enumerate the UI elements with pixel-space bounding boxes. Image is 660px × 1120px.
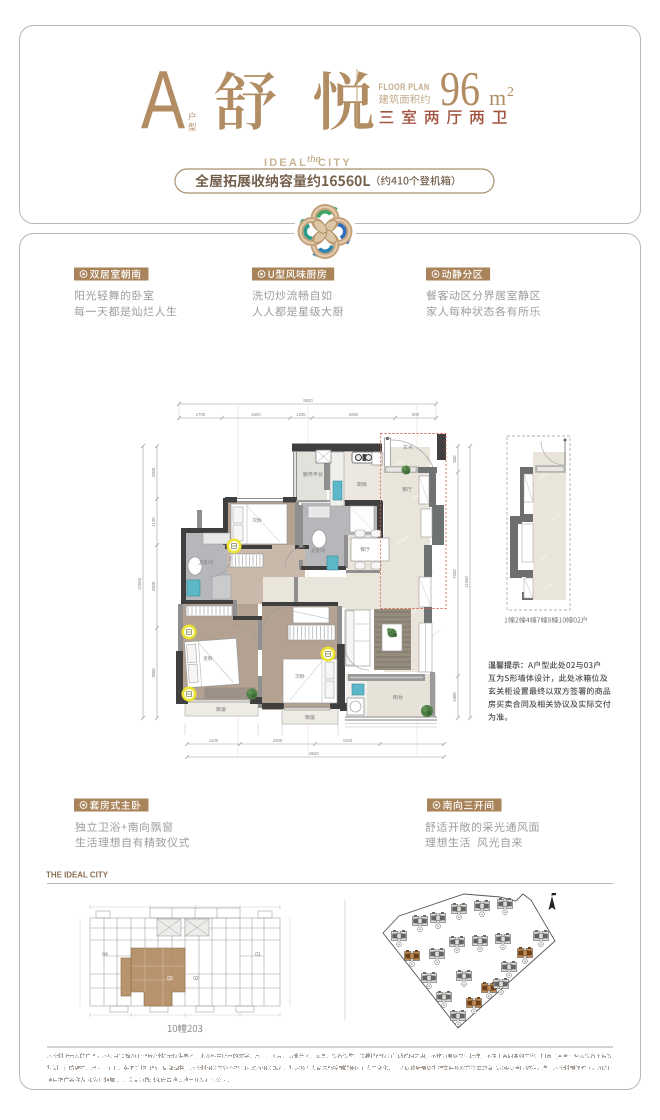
svg-text:IDEAL: IDEAL [264, 157, 308, 169]
svg-text:2: 2 [507, 85, 514, 100]
svg-text:1100: 1100 [209, 738, 219, 743]
svg-text:04: 04 [102, 952, 108, 958]
svg-text:900: 900 [412, 412, 420, 417]
svg-text:3000: 3000 [151, 668, 156, 678]
svg-text:the: the [307, 153, 321, 165]
svg-text:01: 01 [255, 952, 261, 958]
svg-text:THE IDEAL CITY: THE IDEAL CITY [46, 870, 108, 880]
svg-text:1500: 1500 [343, 738, 353, 743]
svg-text:2000: 2000 [151, 467, 156, 477]
svg-text:9530: 9530 [303, 398, 313, 403]
svg-text:1130: 1130 [151, 517, 156, 527]
svg-text:96: 96 [440, 61, 480, 116]
svg-text:FLOOR PLAN: FLOOR PLAN [379, 82, 430, 92]
svg-text:m: m [489, 85, 506, 110]
svg-text:02: 02 [193, 976, 199, 982]
svg-text:A: A [141, 53, 185, 146]
svg-text:2900: 2900 [273, 738, 283, 743]
svg-text:1800: 1800 [452, 692, 457, 702]
svg-text:2850: 2850 [349, 412, 359, 417]
svg-text:11550: 11550 [464, 576, 469, 588]
svg-text:CITY: CITY [318, 157, 352, 169]
svg-text:800: 800 [452, 455, 457, 463]
svg-text:2600: 2600 [251, 412, 261, 417]
svg-text:1700: 1700 [196, 412, 206, 417]
svg-text:8530: 8530 [309, 751, 319, 756]
svg-text:12550: 12550 [137, 577, 142, 590]
svg-text:1200: 1200 [296, 412, 306, 417]
svg-text:03: 03 [167, 976, 173, 982]
svg-text:2600: 2600 [151, 581, 156, 591]
svg-text:7050: 7050 [452, 569, 457, 579]
